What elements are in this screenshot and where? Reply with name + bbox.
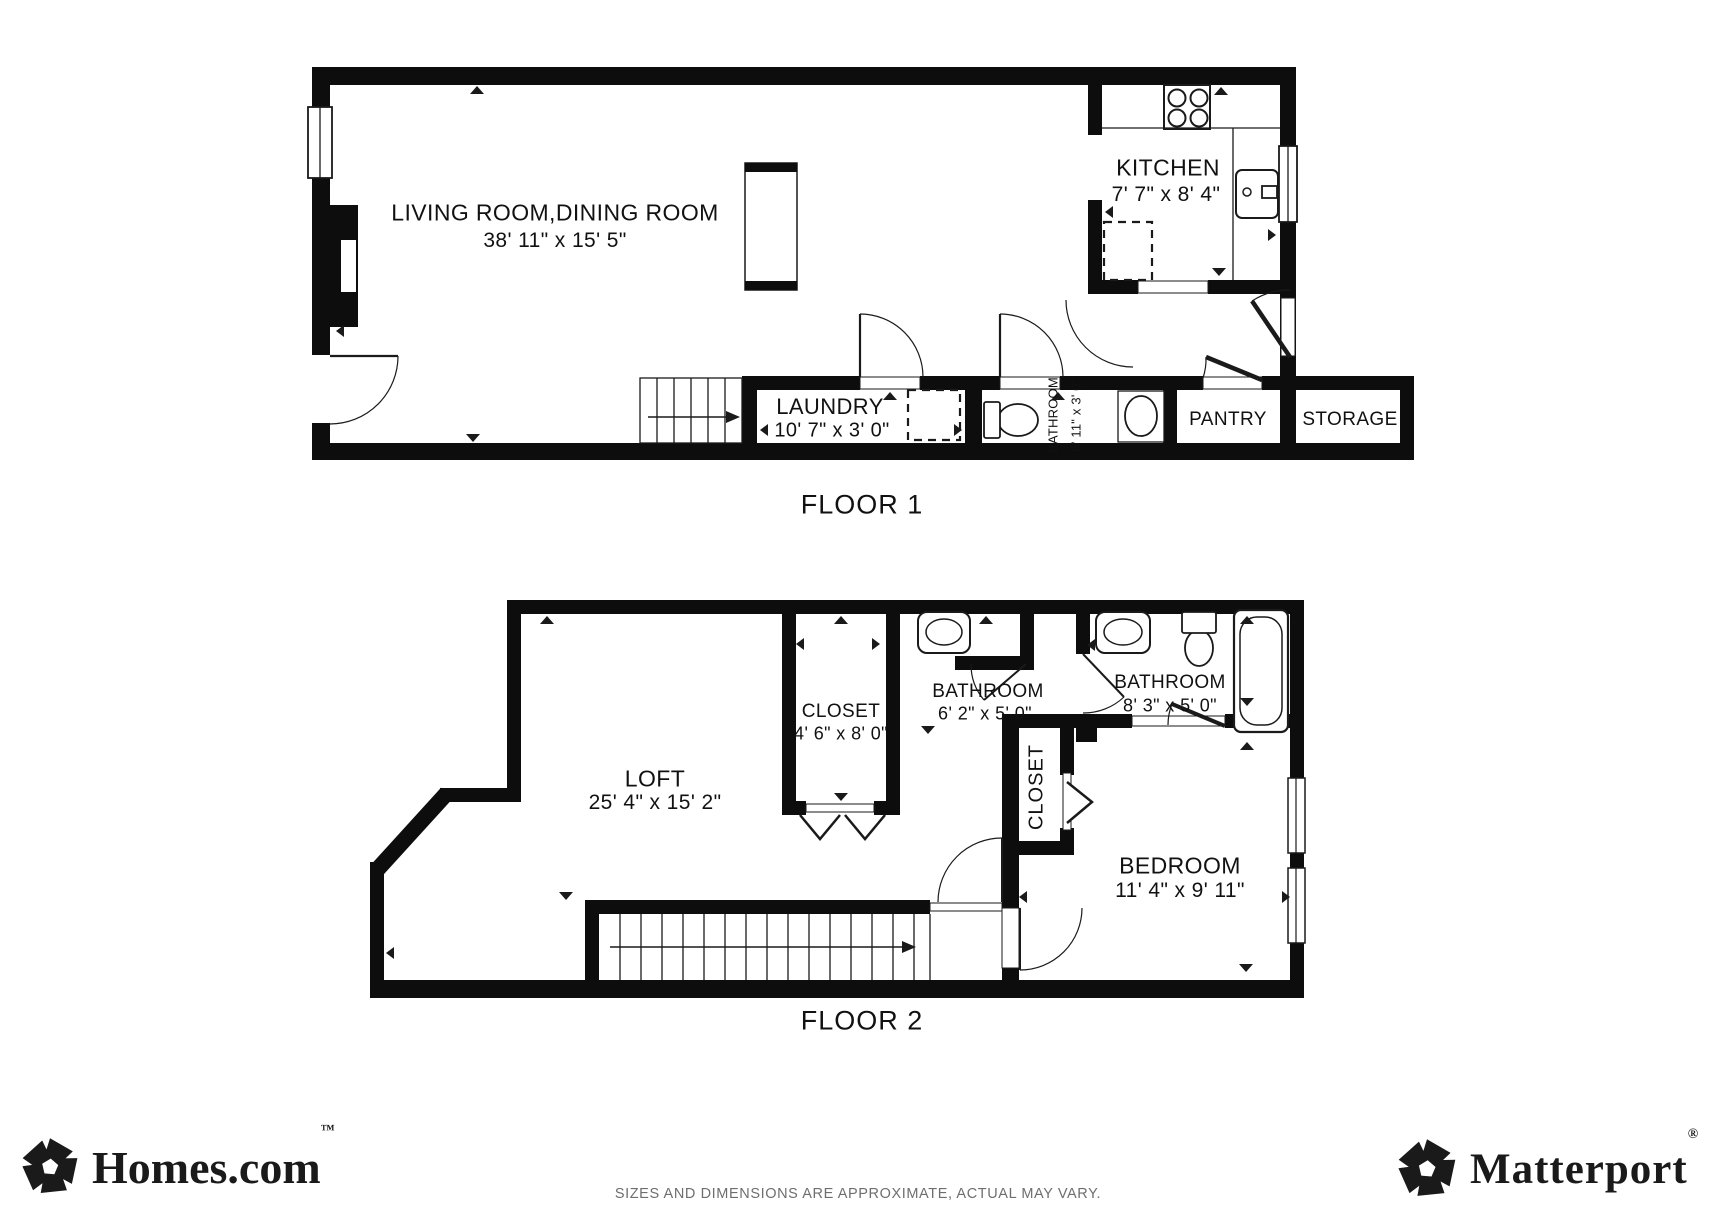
room-label-storage: STORAGE (1302, 409, 1397, 431)
bifold-door (800, 815, 840, 839)
washer-dashed (908, 390, 960, 440)
room-label-closet-f2: CLOSET (802, 701, 880, 723)
room-label-pantry: PANTRY (1189, 409, 1267, 431)
door-opening (1002, 908, 1019, 968)
matterport-logo-text: Matterport® (1470, 1145, 1699, 1194)
room-label-bedroom: BEDROOM (1119, 853, 1241, 880)
room-dims-bathroom2: 8' 3" x 5' 0" (1123, 696, 1217, 717)
door-arc (1000, 314, 1063, 377)
media-wall (745, 163, 797, 290)
floor2-dimension-markers (386, 616, 1290, 972)
room-label-bathroom1: BATHROOM (932, 681, 1044, 703)
stove (1164, 85, 1210, 129)
dishwasher-dashed (1104, 222, 1152, 280)
room-dims-living: 38' 11" x 15' 5" (483, 229, 626, 253)
room-label-bathroom2: BATHROOM (1114, 672, 1226, 694)
fireplace-niche (341, 240, 356, 292)
registered-mark: ® (1688, 1127, 1699, 1142)
door-opening (1138, 281, 1208, 293)
room-label-closet-bedroom: CLOSET (1026, 744, 1049, 830)
angled-wall (376, 793, 447, 871)
bathtub (1234, 610, 1288, 732)
door-opening (311, 355, 331, 423)
door-opening (1203, 377, 1262, 389)
room-dims-laundry: 10' 7" x 3' 0" (774, 420, 889, 443)
toilet (1182, 612, 1216, 666)
room-dims-bedroom: 11' 4" x 9' 11" (1115, 879, 1245, 903)
bathroom-sink (1118, 391, 1164, 442)
trademark-mark: ™ (321, 1123, 335, 1138)
door-opening (930, 903, 1002, 911)
door-arc (938, 838, 1002, 902)
bathroom-sink (1096, 612, 1150, 653)
kitchen-sink (1236, 170, 1278, 218)
closet-opening (806, 804, 874, 812)
room-label-living: LIVING ROOM,DINING ROOM (391, 200, 718, 227)
room-dims-kitchen: 7' 7" x 8' 4" (1112, 183, 1221, 207)
stairs (610, 914, 930, 980)
floorplan-page: LIVING ROOM,DINING ROOM 38' 11" x 15' 5"… (0, 0, 1716, 1216)
door-arc (1020, 908, 1082, 970)
room-dims-loft: 25' 4" x 15' 2" (589, 791, 722, 815)
room-label-bathroom-f1: BATHROOM (1046, 377, 1061, 453)
room-label-laundry: LAUNDRY (776, 394, 884, 420)
floor1-caption: FLOOR 1 (801, 490, 924, 521)
room-label-kitchen: KITCHEN (1116, 155, 1220, 182)
room-dims-bathroom1: 6' 2" x 5' 0" (938, 704, 1032, 725)
room-dims-bathroom-f1: 5' 11" x 3' 0" (1069, 378, 1084, 451)
door-arc (330, 356, 398, 424)
bifold-door (1067, 782, 1092, 823)
bifold-door (845, 815, 885, 839)
floor2-caption: FLOOR 2 (801, 1006, 924, 1037)
bathroom-sink (918, 612, 970, 653)
room-label-loft: LOFT (625, 766, 685, 793)
door-arc (1066, 300, 1133, 367)
door-arc (1203, 357, 1206, 378)
matterport-logo: Matterport® (1396, 1138, 1699, 1200)
door-arc (1083, 697, 1124, 713)
door-arc (860, 314, 923, 377)
floor2-walls (370, 600, 1304, 998)
matterport-pinwheel-icon (1396, 1138, 1458, 1200)
door-opening (860, 377, 920, 389)
toilet (984, 402, 1038, 438)
stairs (640, 378, 742, 443)
room-dims-closet-f2: 4' 6" x 8' 0" (794, 724, 888, 745)
